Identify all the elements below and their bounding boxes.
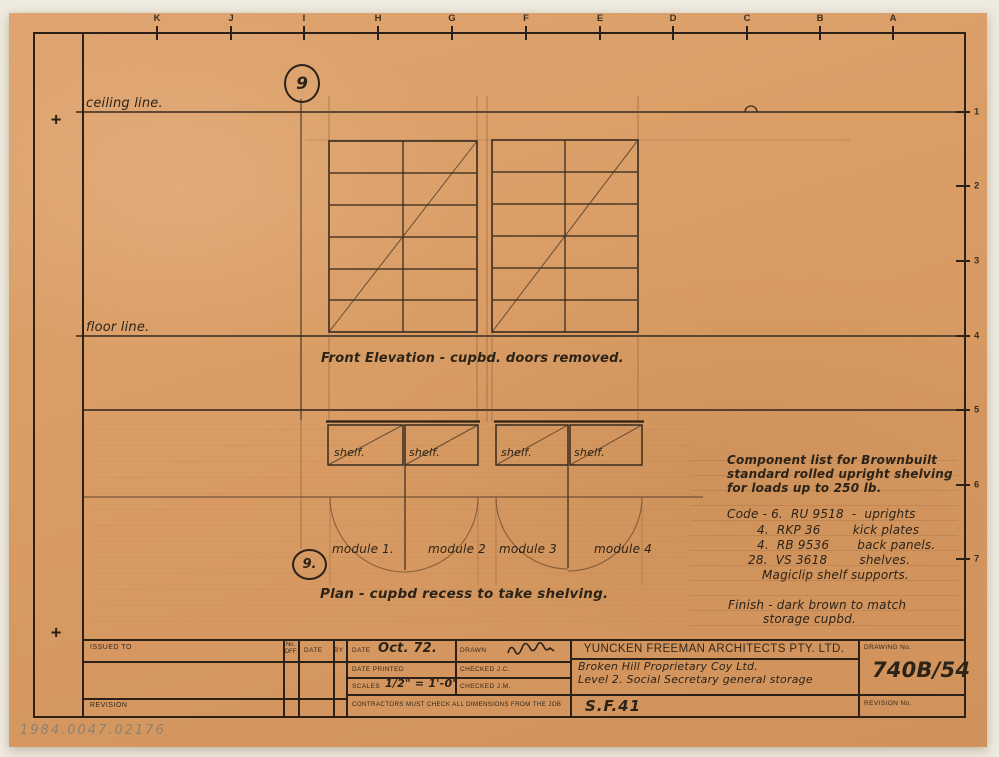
- by-column-label: BY: [334, 647, 343, 654]
- grid-letter-f: F: [523, 13, 529, 24]
- grid-letter-b: B: [817, 13, 824, 24]
- shelf-label-3: shelf.: [501, 446, 532, 459]
- finish-note-line: storage cupbd.: [763, 612, 856, 626]
- client-line: Broken Hill Proprietary Coy Ltd.: [578, 660, 758, 673]
- detail-reference-number: 9.: [303, 557, 317, 572]
- grid-letter-j: J: [228, 13, 233, 24]
- date-printed-label: DATE PRINTED: [352, 666, 404, 673]
- component-code-line: 28. VS 3618 shelves.: [748, 553, 910, 567]
- date-label: DATE: [352, 647, 370, 654]
- grid-tick: [956, 260, 970, 262]
- shelf-label-2: shelf.: [409, 446, 440, 459]
- drawn-label: DRAWN: [460, 647, 486, 654]
- title-block-line: [858, 639, 860, 717]
- detail-reference-number: 9: [296, 74, 308, 94]
- module-label-4: module 4: [594, 542, 652, 556]
- no-off-label: No. OFF: [284, 642, 297, 656]
- grid-letter-h: H: [375, 13, 382, 24]
- grid-tick: [956, 185, 970, 187]
- component-code-line: 4. RKP 36 kick plates: [757, 523, 919, 537]
- contractors-note: CONTRACTORS MUST CHECK ALL DIMENSIONS FR…: [352, 701, 561, 708]
- revision-no-label: REVISION No.: [864, 700, 912, 707]
- issued-to-label: ISSUED TO: [90, 644, 132, 651]
- grid-tick: [892, 26, 894, 40]
- grid-letter-a: A: [890, 13, 897, 24]
- title-block-line: [346, 694, 965, 696]
- ceiling-line-label: ceiling line.: [86, 96, 163, 111]
- grid-tick: [956, 111, 970, 113]
- job-line: Level 2. Social Secretary general storag…: [578, 673, 813, 686]
- finish-note-line: Finish - dark brown to match: [728, 598, 906, 612]
- grid-number-5: 5: [974, 405, 979, 416]
- title-block-line: [82, 698, 346, 700]
- grid-letter-k: K: [154, 13, 161, 24]
- grid-tick: [746, 26, 748, 40]
- module-label-3: module 3: [499, 542, 557, 556]
- firm-name: YUNCKEN FREEMAN ARCHITECTS PTY. LTD.: [570, 643, 858, 655]
- grid-number-2: 2: [974, 181, 979, 192]
- scanned-architectural-drawing: + + K J I H G F E D C B A 1 2 3 4 5 6 7 …: [0, 0, 999, 757]
- detail-reference-circle-top: 9: [284, 64, 320, 103]
- date-column-label: DATE: [304, 647, 322, 654]
- floor-line-label: floor line.: [86, 320, 149, 335]
- grid-letter-c: C: [744, 13, 751, 24]
- shelf-label-4: shelf.: [574, 446, 605, 459]
- grid-tick: [672, 26, 674, 40]
- grid-tick: [956, 558, 970, 560]
- registration-mark-bottom: +: [51, 623, 61, 643]
- component-note-line: standard rolled upright shelving: [727, 467, 953, 481]
- grid-tick: [599, 26, 601, 40]
- grid-number-6: 6: [974, 480, 979, 491]
- scales-label: SCALES: [352, 683, 380, 690]
- checked-jm-label: CHECKED J.M.: [460, 683, 511, 690]
- component-code-line: Magiclip shelf supports.: [762, 568, 909, 582]
- inner-margin-line: [82, 32, 84, 718]
- component-note-line: Component list for Brownbuilt: [727, 453, 937, 467]
- title-block-line: [82, 661, 570, 663]
- grid-letter-d: D: [670, 13, 677, 24]
- grid-tick: [819, 26, 821, 40]
- scales-value: 1/2" = 1'-0": [385, 677, 458, 690]
- grid-tick: [956, 335, 970, 337]
- grid-letter-e: E: [597, 13, 603, 24]
- grid-number-1: 1: [974, 107, 979, 118]
- drawing-no-label: DRAWING No.: [864, 644, 912, 651]
- grid-number-3: 3: [974, 256, 979, 267]
- grid-tick: [956, 484, 970, 486]
- grid-letter-g: G: [448, 13, 455, 24]
- detail-reference-circle-plan: 9.: [292, 549, 327, 580]
- grid-tick: [303, 26, 305, 40]
- grid-tick: [525, 26, 527, 40]
- grid-number-7: 7: [974, 554, 979, 565]
- component-code-line: Code - 6. RU 9518 - uprights: [727, 507, 916, 521]
- shelf-label-1: shelf.: [334, 446, 365, 459]
- plan-caption: Plan - cupbd recess to take shelving.: [320, 586, 608, 602]
- grid-tick: [377, 26, 379, 40]
- module-label-1: module 1.: [332, 542, 394, 556]
- checked-jc-label: CHECKED J.C.: [460, 666, 510, 673]
- revision-label: REVISION: [90, 702, 127, 709]
- grid-tick: [956, 409, 970, 411]
- component-note-line: for loads up to 250 lb.: [727, 481, 881, 495]
- drawing-no-value: 740B/54: [872, 658, 970, 682]
- module-label-2: module 2: [428, 542, 486, 556]
- title-block-line: [346, 639, 348, 717]
- date-value: Oct. 72.: [378, 641, 437, 656]
- grid-tick: [230, 26, 232, 40]
- title-block-line: [82, 639, 965, 641]
- grid-tick: [156, 26, 158, 40]
- grid-tick: [451, 26, 453, 40]
- sheet-ref: S.F.41: [585, 697, 641, 715]
- component-code-line: 4. RB 9536 back panels.: [757, 538, 935, 552]
- registration-mark-top: +: [51, 110, 61, 130]
- grid-number-4: 4: [974, 331, 979, 342]
- title-block-line: [298, 639, 300, 717]
- elevation-caption: Front Elevation - cupbd. doors removed.: [321, 351, 624, 366]
- accession-number: 1984.0047.02176: [20, 723, 166, 738]
- grid-letter-i: I: [303, 13, 306, 24]
